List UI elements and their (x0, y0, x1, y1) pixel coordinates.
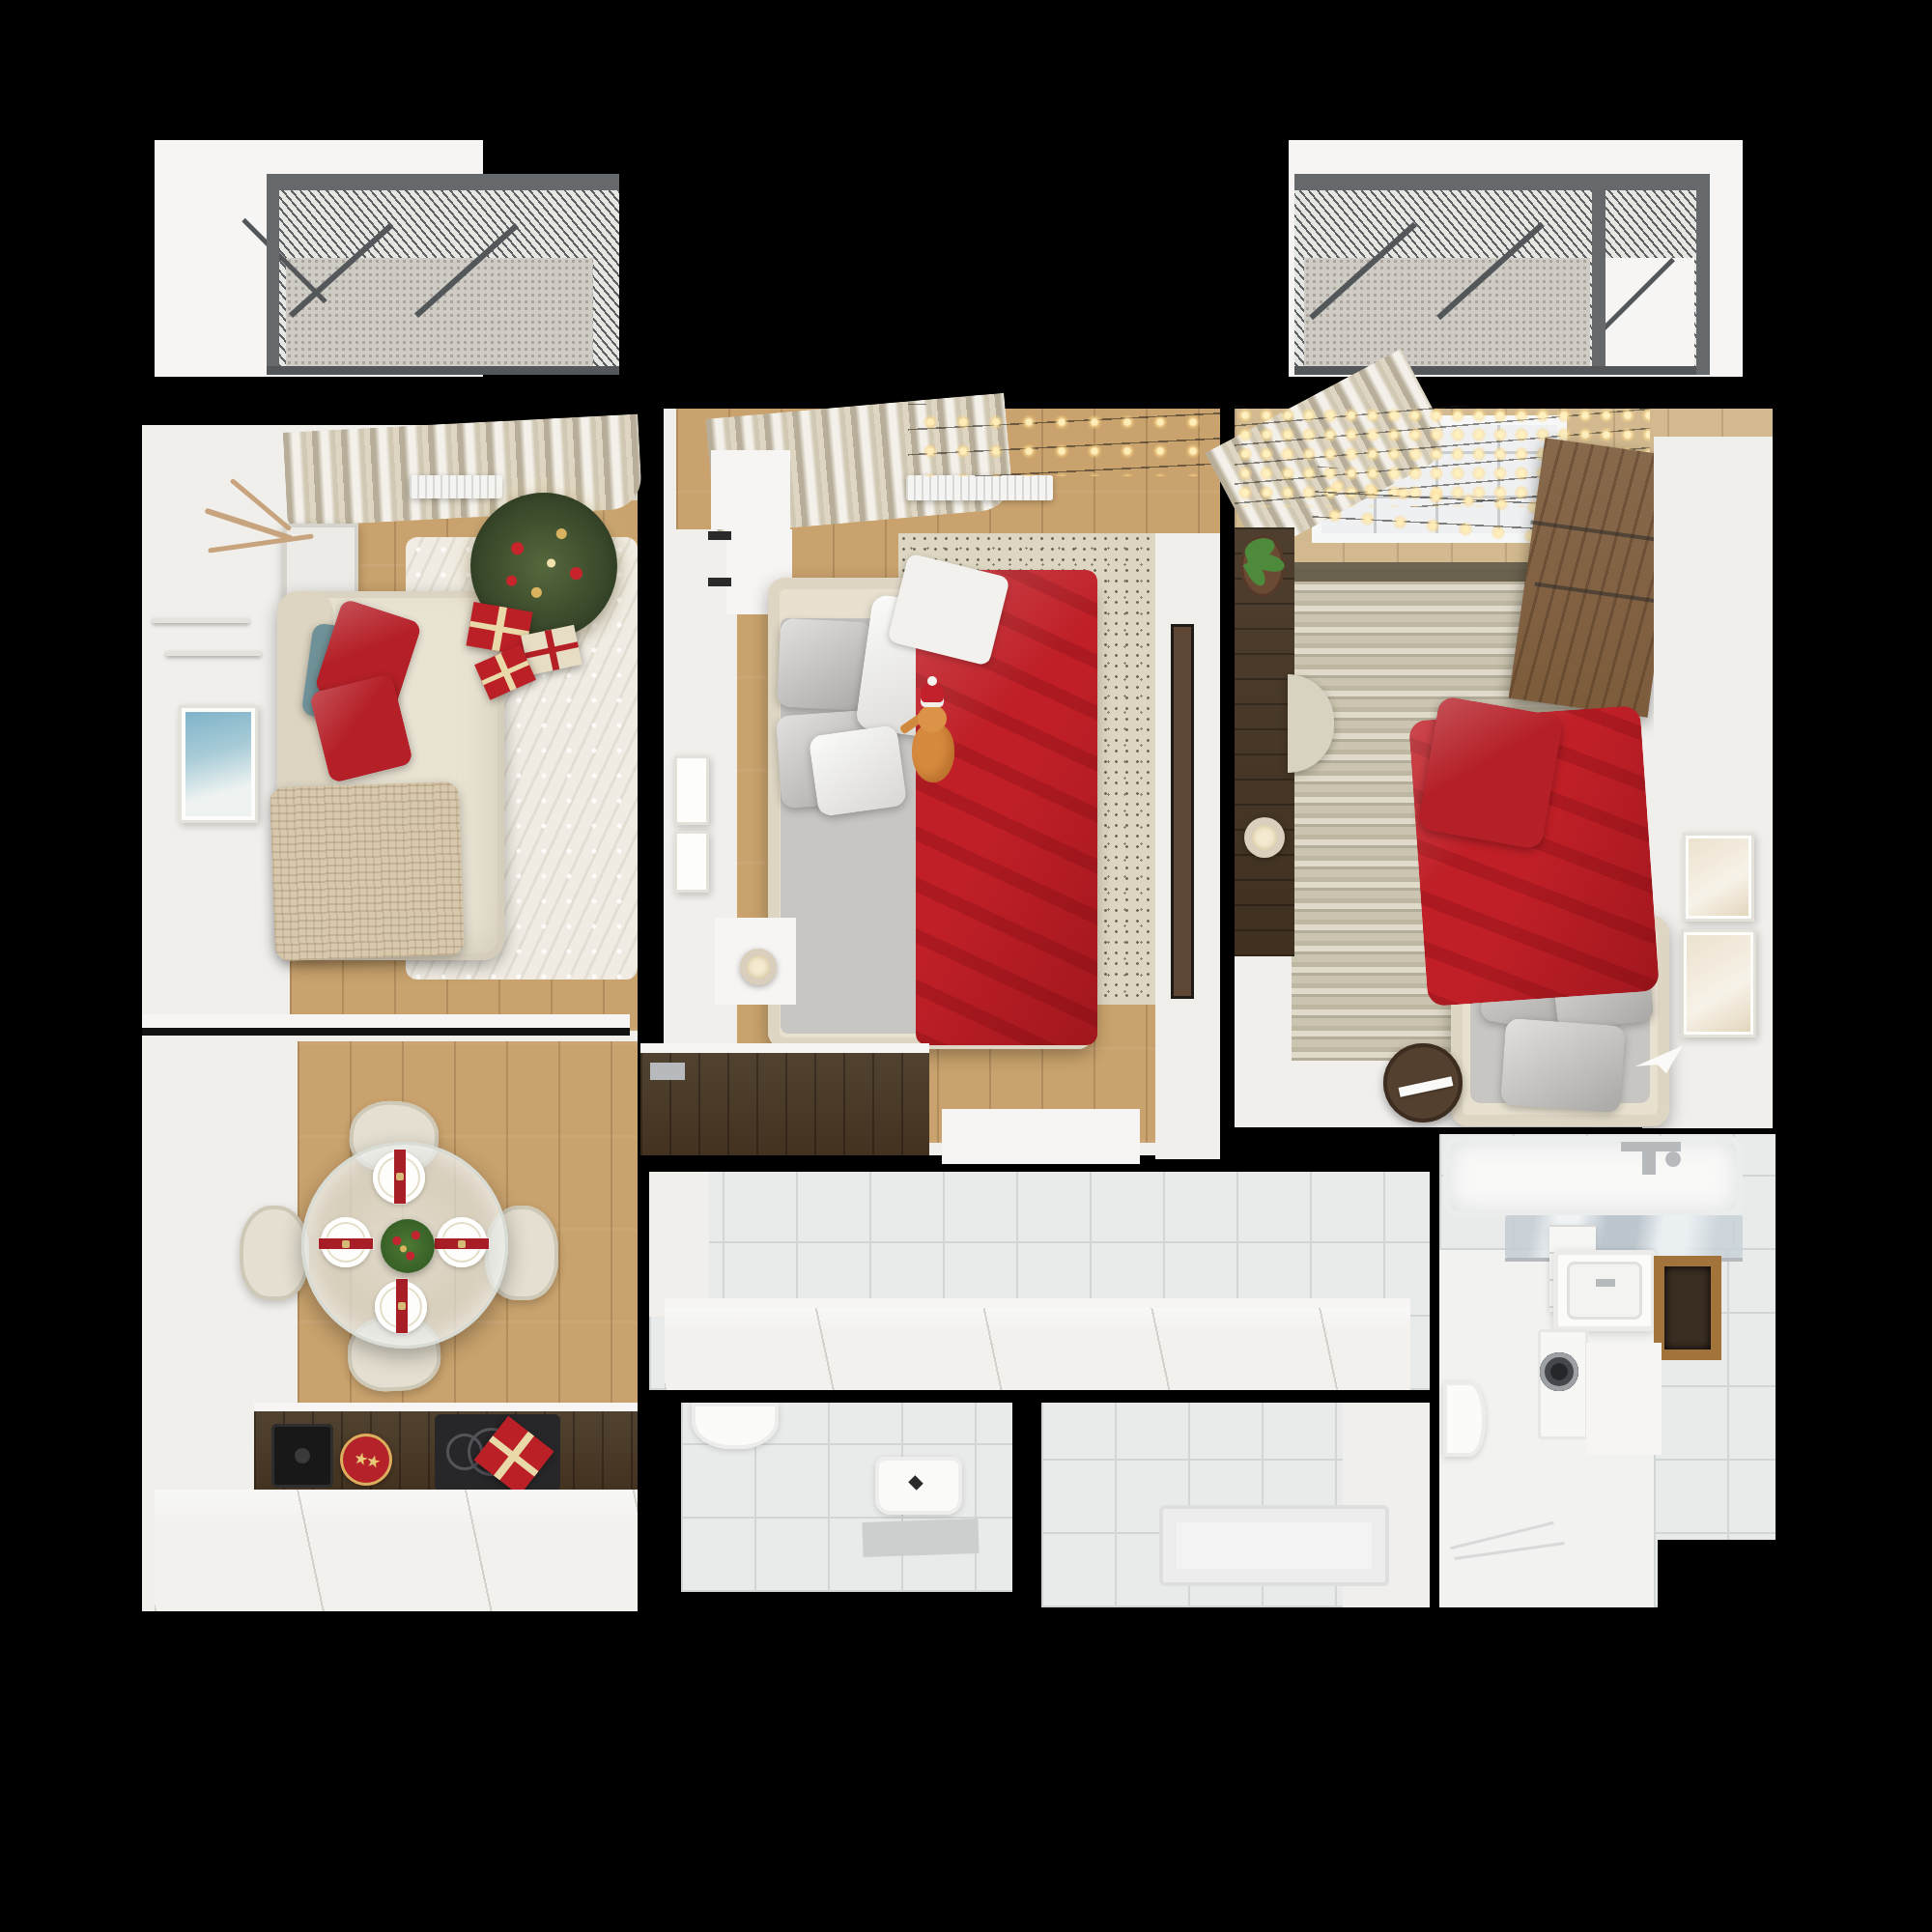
kitchen-countertop (155, 1490, 638, 1611)
cat-hat-pom (927, 676, 937, 686)
bedroom-radiator (906, 475, 1053, 500)
wall-sconce-1 (153, 618, 249, 623)
bathroom2-corner-notch (1658, 1540, 1776, 1607)
balcony-right-perforated-screen (1304, 258, 1590, 372)
bathtub (1443, 1136, 1743, 1217)
wardrobe-top-rail (640, 1043, 929, 1053)
napkin-north (394, 1150, 406, 1204)
bedroom-bench (942, 1109, 1140, 1164)
bedroom-string-lights (908, 404, 1220, 476)
kitchen-sink (271, 1424, 333, 1488)
balcony-left-frame-bottom (267, 366, 619, 375)
balcony-left-frame-top (267, 174, 619, 190)
bathroom-counter (665, 1308, 1410, 1390)
balcony-right-frame-top (1294, 174, 1710, 190)
bed-pillow-small (809, 724, 908, 817)
bathroom-left-wall (649, 1172, 709, 1317)
nightstand-candle (740, 949, 777, 985)
bedroom-frame-1 (674, 755, 709, 825)
kids-pillow-3 (1500, 1018, 1626, 1113)
laundry-counter (1586, 1343, 1662, 1455)
wall-hook-1 (708, 531, 731, 540)
napkin-south (396, 1279, 408, 1333)
kids-wardrobe (1654, 437, 1773, 867)
wardrobe-plate (650, 1063, 685, 1080)
kids-duvet-fold (1417, 696, 1564, 850)
living-wall-art-print (185, 712, 251, 816)
bedroom-frame-2 (674, 831, 709, 893)
living-radiator (410, 475, 502, 498)
living-side-table (283, 524, 358, 599)
wall-sconce-2 (166, 651, 261, 656)
shower-tray (1159, 1505, 1389, 1586)
desk-candle (1244, 817, 1285, 858)
table-centerpiece (381, 1219, 435, 1273)
bathtub-faucet-head (1665, 1151, 1681, 1167)
bathroom2-toilet (1443, 1381, 1486, 1457)
wall-hook-2 (708, 578, 731, 586)
balcony-right-post (1592, 189, 1605, 375)
balcony-right-frame-right (1696, 189, 1710, 375)
bedroom-tall-art (1171, 624, 1194, 999)
kitchen-counter-edge (254, 1403, 638, 1411)
living-divider-shadow (142, 1028, 630, 1036)
sofa-blanket (270, 781, 465, 962)
bathtub-faucet-neck (1642, 1146, 1656, 1175)
napkin-west (319, 1238, 373, 1249)
vanity-faucet (1596, 1279, 1615, 1287)
apartment-floorplan-render (0, 0, 1932, 1932)
balcony-left-frame-left (267, 174, 279, 375)
napkin-east (435, 1238, 489, 1249)
living-divider-shelf (142, 1014, 630, 1028)
wc-mat (862, 1519, 979, 1557)
wood-shelf-box (1654, 1256, 1721, 1360)
kids-frame-2-print (1687, 935, 1750, 1032)
kitchen-red-plate (340, 1434, 392, 1486)
dining-chair-left (240, 1206, 309, 1300)
vanity-sink (1553, 1250, 1656, 1331)
kids-frame-1-print (1689, 838, 1748, 916)
bedroom-dresser-1 (711, 450, 790, 529)
washing-machine-door (1540, 1352, 1578, 1391)
cat-head (918, 705, 947, 732)
bathroom-counter-lip (665, 1298, 1410, 1308)
